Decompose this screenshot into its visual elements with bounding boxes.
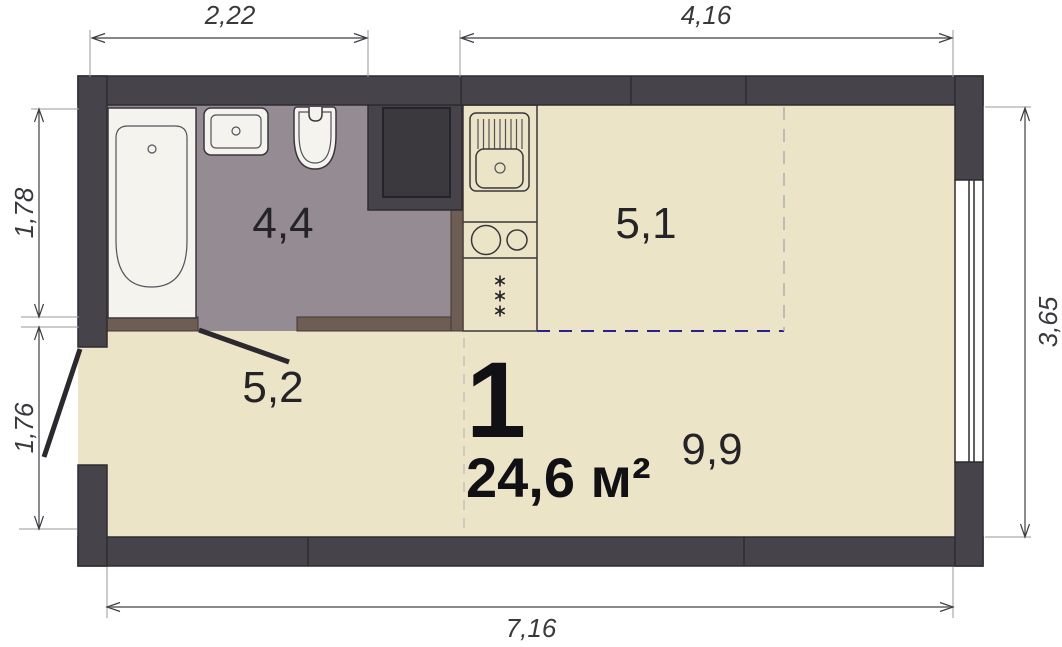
- dimension-bottom-total: 7,16: [107, 567, 953, 643]
- area-label-kitchen-zone: 5,1: [615, 199, 676, 248]
- area-label-entry-zone: 5,2: [242, 363, 303, 412]
- dimension-top-bathroom: 2,22: [90, 0, 368, 77]
- vent-shaft-duct: [383, 108, 450, 197]
- toilet-flush-icon: [309, 107, 322, 121]
- wall-left-upper: [78, 76, 107, 347]
- wall-bottom: [78, 537, 983, 566]
- dimension-left-entry: 1,76: [9, 327, 79, 529]
- area-label-bathroom: 4,4: [252, 199, 313, 248]
- floor-plan: 2,22 4,16 1,78 1,76 3,65 7,16 4,4 5,1 5,…: [0, 0, 1062, 647]
- unit-number: 1: [466, 339, 526, 460]
- dim-label-bottom-total: 7,16: [506, 613, 557, 643]
- wall-right-upper: [955, 76, 983, 180]
- floor-plan-canvas: 2,22 4,16 1,78 1,76 3,65 7,16 4,4 5,1 5,…: [0, 0, 1062, 647]
- entry-doorway-floor: [78, 347, 107, 465]
- wall-top: [78, 76, 983, 105]
- dim-label-right-room: 3,65: [1033, 296, 1062, 347]
- window: [955, 180, 983, 462]
- vent-shaft: [368, 105, 462, 210]
- dimension-right-room: 3,65: [985, 107, 1062, 537]
- unit-total-area: 24,6 м²: [466, 446, 651, 509]
- wall-left-lower: [78, 465, 107, 566]
- dim-label-left-bathroom: 1,78: [9, 187, 39, 238]
- entry-door-leaf: [44, 349, 80, 457]
- dim-label-top-room: 4,16: [681, 0, 732, 30]
- bathroom-wall-right-segment: [297, 317, 455, 331]
- dim-label-top-bathroom: 2,22: [204, 0, 256, 30]
- wall-right-lower: [955, 462, 983, 566]
- bathroom-kitchen-partition: [451, 210, 463, 331]
- bathroom-wall-left-segment: [107, 317, 198, 331]
- dimension-left-bathroom: 1,78: [9, 109, 79, 317]
- dimension-top-room: 4,16: [460, 0, 953, 77]
- dim-label-left-entry: 1,76: [9, 402, 39, 453]
- area-label-living-zone: 9,9: [681, 425, 742, 474]
